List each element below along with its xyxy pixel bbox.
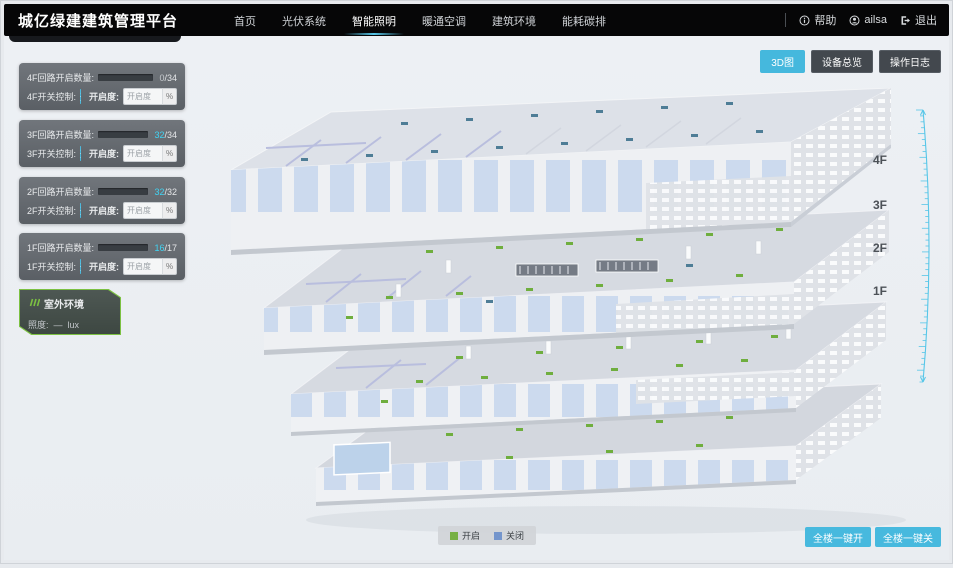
floor-label-4f[interactable]: 4F: [873, 153, 887, 167]
switch-control-label: 2F开关控制:: [27, 204, 76, 217]
nav-building-env[interactable]: 建筑环境: [488, 4, 540, 36]
device-overview-button[interactable]: 设备总览: [811, 50, 873, 73]
floor-label-1f[interactable]: 1F: [873, 284, 887, 298]
user-icon: [849, 15, 860, 26]
info-icon: [799, 15, 810, 26]
opening-input[interactable]: [123, 88, 162, 105]
app-root: { "header": { "title": "城亿绿建建筑管理平台", "na…: [0, 0, 953, 564]
illuminance-label: 照度:: [28, 318, 49, 331]
opening-input[interactable]: [123, 145, 162, 162]
switch-on-button[interactable]: 开: [80, 89, 81, 104]
illuminance-value: —: [54, 320, 63, 330]
legend-off: 关闭: [494, 529, 524, 542]
opening-label: 开启度:: [89, 260, 119, 273]
circuit-count-label: 2F回路开启数量:: [27, 185, 94, 198]
opening-unit-button[interactable]: %: [162, 202, 177, 219]
building-3d-view[interactable]: [216, 88, 916, 568]
switch-control: 开关: [80, 259, 81, 274]
bulk-actions: 全楼一键开 全楼一键关: [805, 527, 941, 547]
main-content: 3D图 设备总览 操作日志 4F回路开启数量: 0/34 4F开关控制: 开关 …: [4, 36, 949, 560]
switch-control-label: 3F开关控制:: [27, 147, 76, 160]
outdoor-env-icon: [28, 298, 40, 310]
opening-label: 开启度:: [89, 90, 119, 103]
nav-home[interactable]: 首页: [230, 4, 260, 36]
switch-on-button[interactable]: 开: [80, 146, 81, 161]
floor-label-2f[interactable]: 2F: [873, 241, 887, 255]
nav-hvac[interactable]: 暖通空调: [418, 4, 470, 36]
floor-panel-3f: 3F回路开启数量: 32/34 3F开关控制: 开关 开启度: %: [19, 120, 185, 167]
help-button[interactable]: 帮助: [799, 12, 836, 28]
switch-control-label: 4F开关控制:: [27, 90, 76, 103]
circuit-count-label: 4F回路开启数量:: [27, 71, 94, 84]
all-on-button[interactable]: 全楼一键开: [805, 527, 871, 547]
legend-off-swatch: [494, 532, 502, 540]
nav-smart-lighting[interactable]: 智能照明: [348, 4, 400, 36]
opening-label: 开启度:: [89, 147, 119, 160]
outdoor-env-panel: 室外环境 照度: — lux: [19, 289, 121, 335]
switch-control: 开关: [80, 203, 81, 218]
circuit-progress-bar: [98, 188, 148, 195]
username: ailsa: [864, 14, 887, 26]
legend-on: 开启: [450, 529, 480, 542]
nav-pv-system[interactable]: 光伏系统: [278, 4, 330, 36]
logout-button[interactable]: 退出: [900, 12, 937, 28]
view-3d-button[interactable]: 3D图: [760, 50, 805, 73]
circuit-count-label: 3F回路开启数量:: [27, 128, 94, 141]
circuit-count-label: 1F回路开启数量:: [27, 241, 94, 254]
logout-icon: [900, 15, 911, 26]
legend-on-swatch: [450, 532, 458, 540]
switch-control-label: 1F开关控制:: [27, 260, 76, 273]
floor-label-3f[interactable]: 3F: [873, 198, 887, 212]
floor-panel-1f: 1F回路开启数量: 16/17 1F开关控制: 开关 开启度: %: [19, 233, 185, 280]
user-menu[interactable]: ailsa: [849, 14, 887, 26]
opening-unit-button[interactable]: %: [162, 258, 177, 275]
app-title: 城亿绿建建筑管理平台: [18, 10, 178, 31]
header-utilities: 帮助 ailsa 退出: [785, 12, 937, 28]
circuit-count-value: 16/17: [154, 243, 177, 253]
all-off-button[interactable]: 全楼一键关: [875, 527, 941, 547]
circuit-progress-bar: [98, 131, 148, 138]
top-bar: 城亿绿建建筑管理平台 首页 光伏系统 智能照明 暖通空调 建筑环境 能耗碳排 帮…: [4, 4, 949, 36]
floor-ruler-slider[interactable]: [903, 104, 943, 393]
header-divider: [785, 13, 786, 27]
opening-input[interactable]: [123, 258, 162, 275]
main-nav: 首页 光伏系统 智能照明 暖通空调 建筑环境 能耗碳排: [230, 4, 610, 36]
switch-control: 开关: [80, 89, 81, 104]
opening-input[interactable]: [123, 202, 162, 219]
nav-energy-carbon[interactable]: 能耗碳排: [558, 4, 610, 36]
switch-on-button[interactable]: 开: [80, 203, 81, 218]
circuit-progress-bar: [98, 74, 153, 81]
switch-control: 开关: [80, 146, 81, 161]
opening-unit-button[interactable]: %: [162, 88, 177, 105]
opening-unit-button[interactable]: %: [162, 145, 177, 162]
light-status-legend: 开启 关闭: [438, 526, 536, 545]
illuminance-unit: lux: [68, 320, 80, 330]
floor-panel-2f: 2F回路开启数量: 32/32 2F开关控制: 开关 开启度: %: [19, 177, 185, 224]
switch-on-button[interactable]: 开: [80, 259, 81, 274]
view-toolbar: 3D图 设备总览 操作日志: [760, 50, 941, 73]
outdoor-env-title: 室外环境: [44, 296, 84, 311]
circuit-count-value: 0/34: [159, 73, 177, 83]
operation-log-button[interactable]: 操作日志: [879, 50, 941, 73]
active-tab-underline: [344, 33, 404, 35]
opening-label: 开启度:: [89, 204, 119, 217]
circuit-count-value: 32/32: [154, 187, 177, 197]
floor-panel-4f: 4F回路开启数量: 0/34 4F开关控制: 开关 开启度: %: [19, 63, 185, 110]
circuit-progress-bar: [98, 244, 148, 251]
circuit-count-value: 32/34: [154, 130, 177, 140]
